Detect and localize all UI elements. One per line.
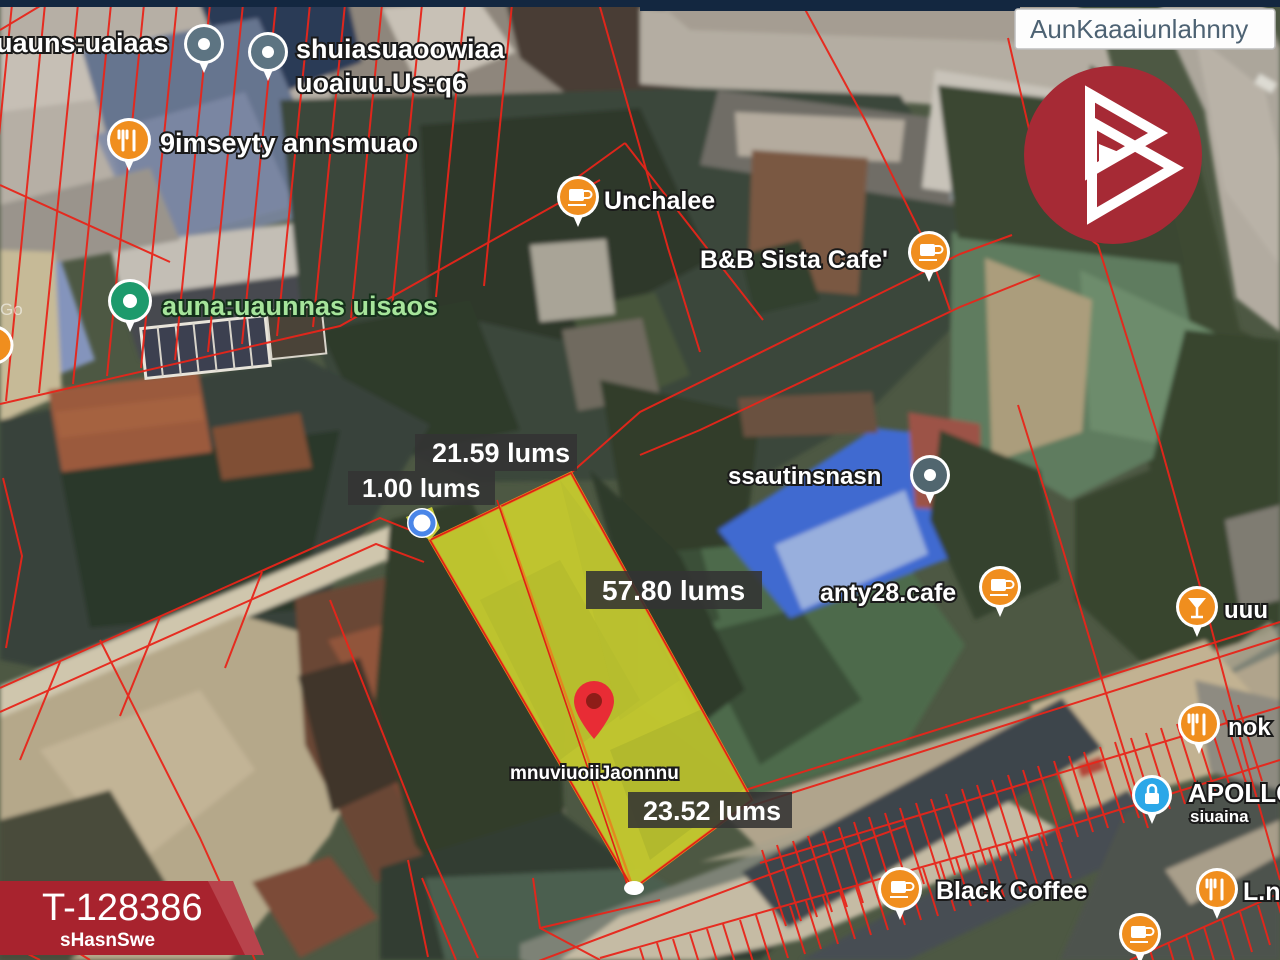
svg-text:mnuviuoiiJaonnnu: mnuviuoiiJaonnnu bbox=[510, 763, 679, 784]
svg-text:nok: nok bbox=[1228, 714, 1271, 741]
svg-text:siuaina: siuaina bbox=[1190, 807, 1249, 826]
svg-text:uauns:uaiaas: uauns:uaiaas bbox=[0, 28, 169, 58]
svg-text:23.52 lums: 23.52 lums bbox=[643, 796, 781, 826]
svg-text:shuiasuaoowiaa: shuiasuaoowiaa bbox=[296, 34, 506, 64]
svg-text:Black Coffee: Black Coffee bbox=[936, 877, 1088, 905]
svg-text:B&B Sista Cafe': B&B Sista Cafe' bbox=[700, 246, 888, 274]
svg-text:auna:uaunnas uisaos: auna:uaunnas uisaos bbox=[162, 291, 438, 321]
svg-text:AunKaaaiunlahnny: AunKaaaiunlahnny bbox=[1030, 14, 1248, 44]
svg-text:9imseyty annsmuao: 9imseyty annsmuao bbox=[160, 128, 418, 158]
svg-text:1.00 lums: 1.00 lums bbox=[362, 473, 481, 503]
svg-text:L.n: L.n bbox=[1243, 878, 1280, 906]
svg-text:ssautinsnasn: ssautinsnasn bbox=[728, 463, 881, 490]
svg-text:anty28.cafe: anty28.cafe bbox=[820, 579, 956, 607]
svg-text:Unchalee: Unchalee bbox=[604, 187, 715, 215]
svg-text:T-128386: T-128386 bbox=[42, 887, 203, 929]
svg-text:57.80 lums: 57.80 lums bbox=[602, 575, 745, 606]
svg-text:21.59 lums: 21.59 lums bbox=[432, 438, 570, 468]
svg-text:Go: Go bbox=[0, 300, 23, 319]
svg-text:uoaiuu.Us:q6: uoaiuu.Us:q6 bbox=[296, 68, 467, 98]
svg-text:APOLLO: APOLLO bbox=[1188, 778, 1280, 808]
svg-text:sHasnSwe: sHasnSwe bbox=[60, 930, 155, 951]
svg-text:uuu: uuu bbox=[1224, 597, 1268, 624]
